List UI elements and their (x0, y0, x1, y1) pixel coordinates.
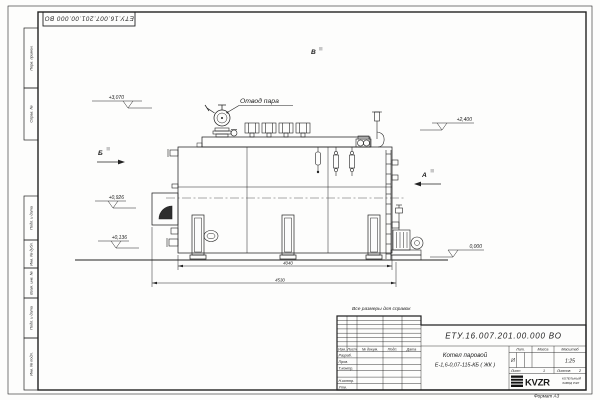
dim-inner: 4040 (283, 261, 293, 266)
sheets-value: 2 (578, 369, 581, 373)
ladder (386, 150, 391, 259)
col-list: Лист (346, 347, 357, 351)
view-v-marker: В (311, 47, 323, 56)
row-tkontr: Т.контр. (339, 366, 354, 370)
hatches (245, 123, 310, 137)
svg-text:Б: Б (98, 150, 103, 157)
format-label: Формат А3 (534, 394, 560, 399)
company-line-1: КОТЕЛЬНЫЙ (562, 377, 582, 381)
lit-label: Лит. (515, 348, 525, 352)
margin-label: Подп. и дата (29, 206, 33, 230)
manhole (204, 231, 218, 242)
drawing-canvas: Перв. примен. Справ. № Подп. и дата Инв.… (0, 0, 600, 400)
stamp-designation: ЕТУ.16.007.201.00.000 ВО (44, 15, 134, 22)
logo-text: KVZR (525, 378, 550, 389)
steam-callout: Отвод пара (226, 97, 293, 114)
dim-outer: 4530 (275, 278, 285, 283)
view-b-marker: Б (97, 147, 125, 164)
sheet-value: 1 (543, 369, 545, 373)
elevation-0926: +0,926 (95, 195, 136, 208)
elevation-3070: +3,070 (92, 95, 152, 108)
level-gauges (316, 147, 355, 176)
svg-text:+2,400: +2,400 (457, 117, 473, 123)
callout-label: Отвод пара (240, 97, 279, 105)
top-platform (202, 137, 370, 147)
view-a-marker: А (414, 169, 441, 186)
boiler-body (178, 147, 392, 253)
margin-label: Перв. примен. (29, 45, 33, 70)
col-doc: № докум. (362, 347, 378, 351)
support-legs (190, 215, 382, 259)
small-fitting (231, 130, 237, 137)
view-markers: Б А В (97, 47, 441, 186)
col-data: Дата (406, 347, 417, 351)
lit-value: И (511, 358, 515, 364)
company-line-2: ЗАВОД РЭП (562, 381, 580, 385)
top-stamp: ЕТУ.16.007.201.00.000 ВО (43, 12, 135, 26)
svg-text:В: В (311, 49, 316, 56)
svg-text:+3,070: +3,070 (109, 95, 125, 101)
pump-unit (391, 205, 423, 260)
margin-label: Справ. № (29, 105, 33, 122)
row-prov: Пров. (339, 360, 349, 364)
row-nkontr: Н.контр. (339, 379, 355, 383)
margin-label: Подп. и дата (29, 306, 33, 330)
mass-label: Масса (538, 348, 549, 352)
drawing-sheet: Перв. примен. Справ. № Подп. и дата Инв.… (0, 0, 600, 400)
col-izm: Изм. (338, 347, 346, 351)
svg-text:+0,136: +0,136 (112, 235, 128, 241)
row-razrab: Разраб. (339, 354, 352, 358)
svg-text:+0,926: +0,926 (109, 195, 125, 201)
scale-value: 1:25 (565, 359, 575, 365)
boiler-view (75, 105, 448, 260)
designation: ЕТУ.16.007.201.00.000 ВО (445, 332, 561, 341)
kvzr-logo: KVZR КОТЕЛЬНЫЙ ЗАВОД РЭП (511, 376, 582, 389)
svg-text:0,000: 0,000 (469, 244, 482, 250)
product-name-1: Котел паровой (443, 352, 488, 359)
elevation-2400: +2,400 (420, 117, 474, 130)
margin-blocks: Перв. примен. Справ. № Подп. и дата Инв.… (24, 28, 38, 390)
title-block: Изм. Лист № докум. Подп. Дата Разраб. Пр… (337, 316, 586, 390)
right-stubs (392, 160, 399, 228)
margin-label: Взам. инв. № (29, 271, 33, 294)
margin-label: Инв. № подл. (29, 352, 33, 376)
col-podp: Подп. (388, 347, 398, 351)
row-utv: Утв. (339, 386, 347, 390)
product-name-2: Е-1,6-0,07-115-КБ ( ЖК ) (435, 363, 495, 369)
elevation-zero: 0,000 (430, 244, 484, 257)
reference-note: Все размеры для справок (352, 306, 411, 312)
elevation-0136: +0,136 (98, 235, 139, 248)
steam-valve (205, 105, 231, 137)
sheets-label: Листов (556, 369, 571, 373)
dimensions: 4040 4530 (152, 227, 396, 287)
scale-label: Масштаб (561, 348, 579, 352)
svg-text:А: А (421, 172, 427, 179)
margin-label: Инв. № дубл. (29, 242, 33, 265)
sheet-label: Лист (510, 369, 521, 373)
